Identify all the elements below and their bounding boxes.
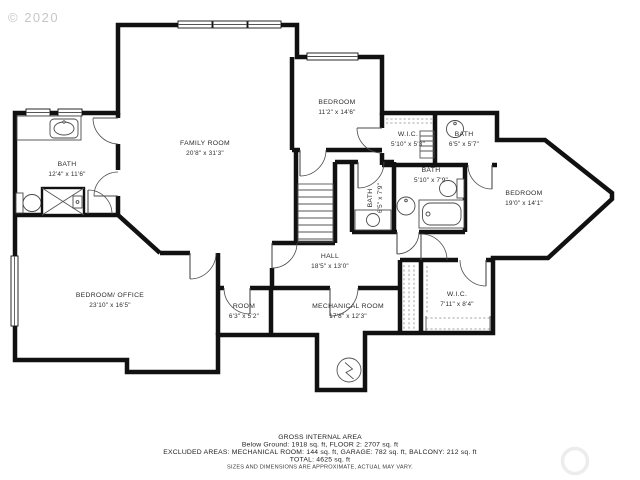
- svg-text:17'8" x 12'3": 17'8" x 12'3": [329, 313, 367, 320]
- svg-text:5'10" x 7'9": 5'10" x 7'9": [414, 177, 448, 184]
- floorplan-page: © 2020: [0, 0, 640, 480]
- exterior-walls: [15, 25, 612, 390]
- svg-text:BATH: BATH: [367, 189, 374, 208]
- room-label-hall: HALL 18'5" x 13'0": [311, 253, 349, 270]
- room-label-bath-vertical: BATH 6'5" x 7'9": [367, 183, 384, 213]
- bathtub-icon: [419, 200, 464, 228]
- room-label-bath-main: BATH 12'4" x 11'6": [48, 161, 85, 178]
- room-label-bedroom-top: BEDROOM 11'2" x 14'6": [318, 99, 355, 116]
- summary-title: GROSS INTERNAL AREA: [278, 434, 362, 441]
- shower-icon: [42, 188, 84, 215]
- closet-rail-icon: [386, 119, 434, 158]
- area-summary: GROSS INTERNAL AREA Below Ground: 1918 s…: [163, 434, 476, 471]
- summary-disclaimer: SIZES AND DIMENSIONS ARE APPROXIMATE, AC…: [227, 465, 413, 471]
- svg-text:BATH: BATH: [422, 167, 441, 174]
- svg-text:6'3" x 5'2": 6'3" x 5'2": [229, 313, 259, 320]
- room-label-room: ROOM 6'3" x 5'2": [229, 303, 259, 320]
- vanity-icon: [355, 210, 391, 230]
- summary-areas: Below Ground: 1918 sq. ft, FLOOR 2: 2707…: [242, 442, 398, 449]
- svg-text:BEDROOM/ OFFICE: BEDROOM/ OFFICE: [76, 292, 144, 299]
- svg-text:6'5" x 7'9": 6'5" x 7'9": [377, 183, 384, 213]
- svg-text:20'8" x 31'3": 20'8" x 31'3": [186, 150, 224, 157]
- toilet-icon: [16, 193, 41, 213]
- room-label-bath-middle: BATH 5'10" x 7'9": [414, 167, 448, 184]
- svg-text:W.I.C.: W.I.C.: [398, 131, 418, 138]
- vanity-counter-icon: [17, 116, 81, 140]
- room-label-bedroom-office: BEDROOM/ OFFICE 23'10" x 16'5": [76, 292, 144, 309]
- svg-text:12'4" x 11'6": 12'4" x 11'6": [48, 171, 85, 178]
- svg-text:BATH: BATH: [58, 161, 77, 168]
- svg-text:BEDROOM: BEDROOM: [505, 190, 542, 197]
- svg-text:7'11" x 8'4": 7'11" x 8'4": [440, 301, 473, 308]
- svg-text:6'5" x 5'7": 6'5" x 5'7": [449, 141, 479, 148]
- svg-text:19'0" x 14'1": 19'0" x 14'1": [505, 200, 543, 207]
- svg-text:5'10" x 5'3": 5'10" x 5'3": [391, 141, 425, 148]
- svg-text:18'5" x 13'0": 18'5" x 13'0": [311, 263, 349, 270]
- svg-text:BATH: BATH: [455, 131, 474, 138]
- room-label-wic-large: W.I.C. 7'11" x 8'4": [440, 291, 473, 308]
- washbasin-icon: [397, 197, 415, 215]
- svg-text:FAMILY ROOM: FAMILY ROOM: [180, 140, 230, 147]
- water-heater-icon: [337, 358, 361, 382]
- floorplan-canvas: © 2020: [0, 0, 640, 480]
- svg-text:11'2" x 14'6": 11'2" x 14'6": [318, 109, 355, 116]
- summary-excluded: EXCLUDED AREAS: MECHANICAL ROOM: 144 sq.…: [163, 449, 476, 456]
- copyright-watermark: © 2020: [8, 10, 59, 25]
- svg-text:MECHANICAL ROOM: MECHANICAL ROOM: [312, 303, 384, 310]
- closet-hatch-icon: [404, 265, 490, 331]
- svg-text:ROOM: ROOM: [233, 303, 255, 310]
- stairs-icon: [298, 184, 333, 242]
- svg-text:W.I.C.: W.I.C.: [447, 291, 467, 298]
- svg-text:23'10" x 16'5": 23'10" x 16'5": [89, 302, 130, 309]
- room-label-mechanical-room: MECHANICAL ROOM 17'8" x 12'3": [312, 303, 384, 320]
- svg-text:HALL: HALL: [321, 253, 339, 260]
- room-label-bedroom-right: BEDROOM 19'0" x 14'1": [505, 190, 543, 207]
- summary-total: TOTAL: 4625 sq. ft: [290, 457, 350, 464]
- brand-logo-icon: [563, 449, 588, 474]
- svg-text:BEDROOM: BEDROOM: [318, 99, 355, 106]
- room-label-family-room: FAMILY ROOM 20'8" x 31'3": [180, 140, 230, 157]
